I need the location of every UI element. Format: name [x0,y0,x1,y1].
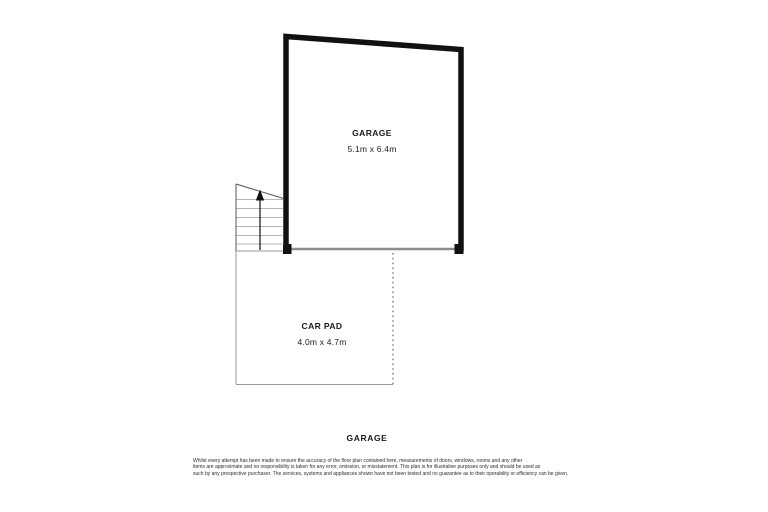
car-pad-dimensions: 4.0m x 4.7m [298,337,347,347]
disclaimer-line: items are approximate and no responsibil… [193,464,593,470]
garage-wall-stub-right [455,244,464,254]
garage-wall-stub-left [283,244,292,254]
stairs [236,184,284,251]
stairs-up-arrow-icon [256,190,264,201]
garage-room-dimensions: 5.1m x 6.4m [348,144,397,154]
disclaimer-text: Whilst every attempt has been made to en… [193,458,593,477]
floor-title: GARAGE [347,433,388,443]
disclaimer-line: such by any prospective purchaser. The s… [193,471,593,477]
car-pad-outline [236,251,393,385]
car-pad-label: CAR PAD [302,321,343,331]
garage-room-label: GARAGE [352,128,392,138]
floor-plan-page: GARAGE 5.1m x 6.4m CAR PAD 4.0m x 4.7m G… [0,0,768,512]
